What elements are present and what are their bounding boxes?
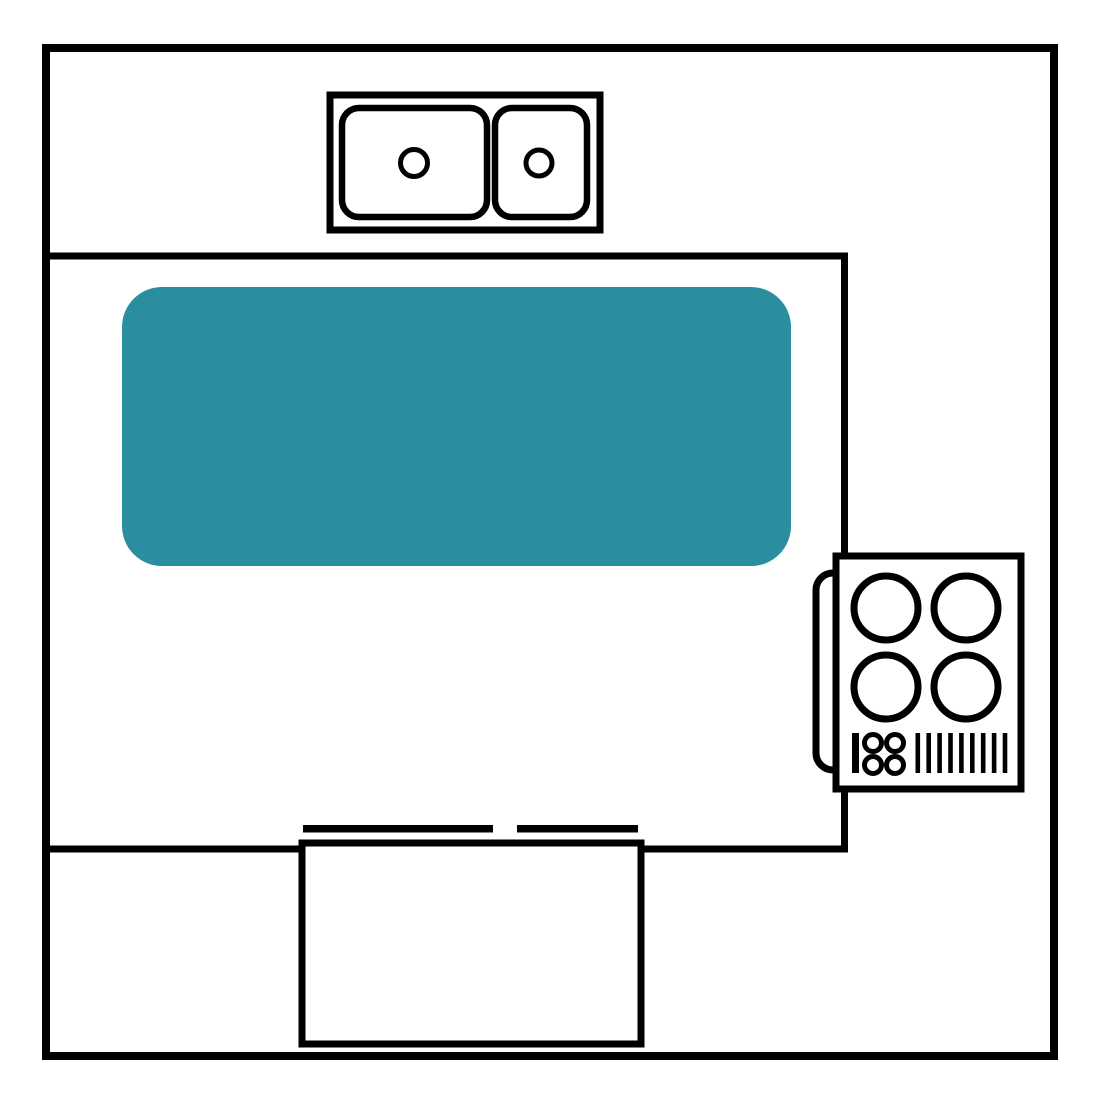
cooktop-vent-slat [970, 733, 975, 773]
cooktop-knob-icon [887, 757, 904, 774]
sink-unit [330, 95, 600, 230]
dishwasher-door-dash-left [303, 825, 493, 833]
dishwasher-outline [302, 843, 641, 1044]
cooktop-vent-slat [959, 733, 964, 773]
cooktop-burner-icon [934, 576, 998, 640]
cooktop-unit [816, 556, 1021, 789]
cooktop-knob-icon [865, 757, 882, 774]
floor-plan-drawing [0, 0, 1100, 1100]
cooktop-control-bar [852, 733, 859, 773]
dishwasher-unit [302, 825, 641, 1044]
cooktop-vent-slat [948, 733, 953, 773]
cooktop-vent-slat [926, 733, 931, 773]
cooktop-burner-icon [934, 655, 998, 719]
dishwasher-door-dash-right [517, 825, 638, 833]
cooktop-vent-slat [1003, 733, 1008, 773]
sink-drain-left-icon [401, 150, 428, 177]
cooktop-vent-slat [916, 733, 921, 773]
sink-drain-right-icon [526, 150, 552, 176]
kitchen-floor-plan [0, 0, 1100, 1100]
cooktop-vent-slat [981, 733, 986, 773]
cooktop-vent-slat [937, 733, 942, 773]
cooktop-vent-slat [992, 733, 997, 773]
cooktop-knob-icon [887, 735, 904, 752]
cooktop-vent-slats [916, 733, 1008, 773]
cooktop-burner-icon [854, 576, 918, 640]
cooktop-knob-icon [865, 735, 882, 752]
island-counter [122, 287, 791, 566]
cooktop-burner-icon [854, 655, 918, 719]
